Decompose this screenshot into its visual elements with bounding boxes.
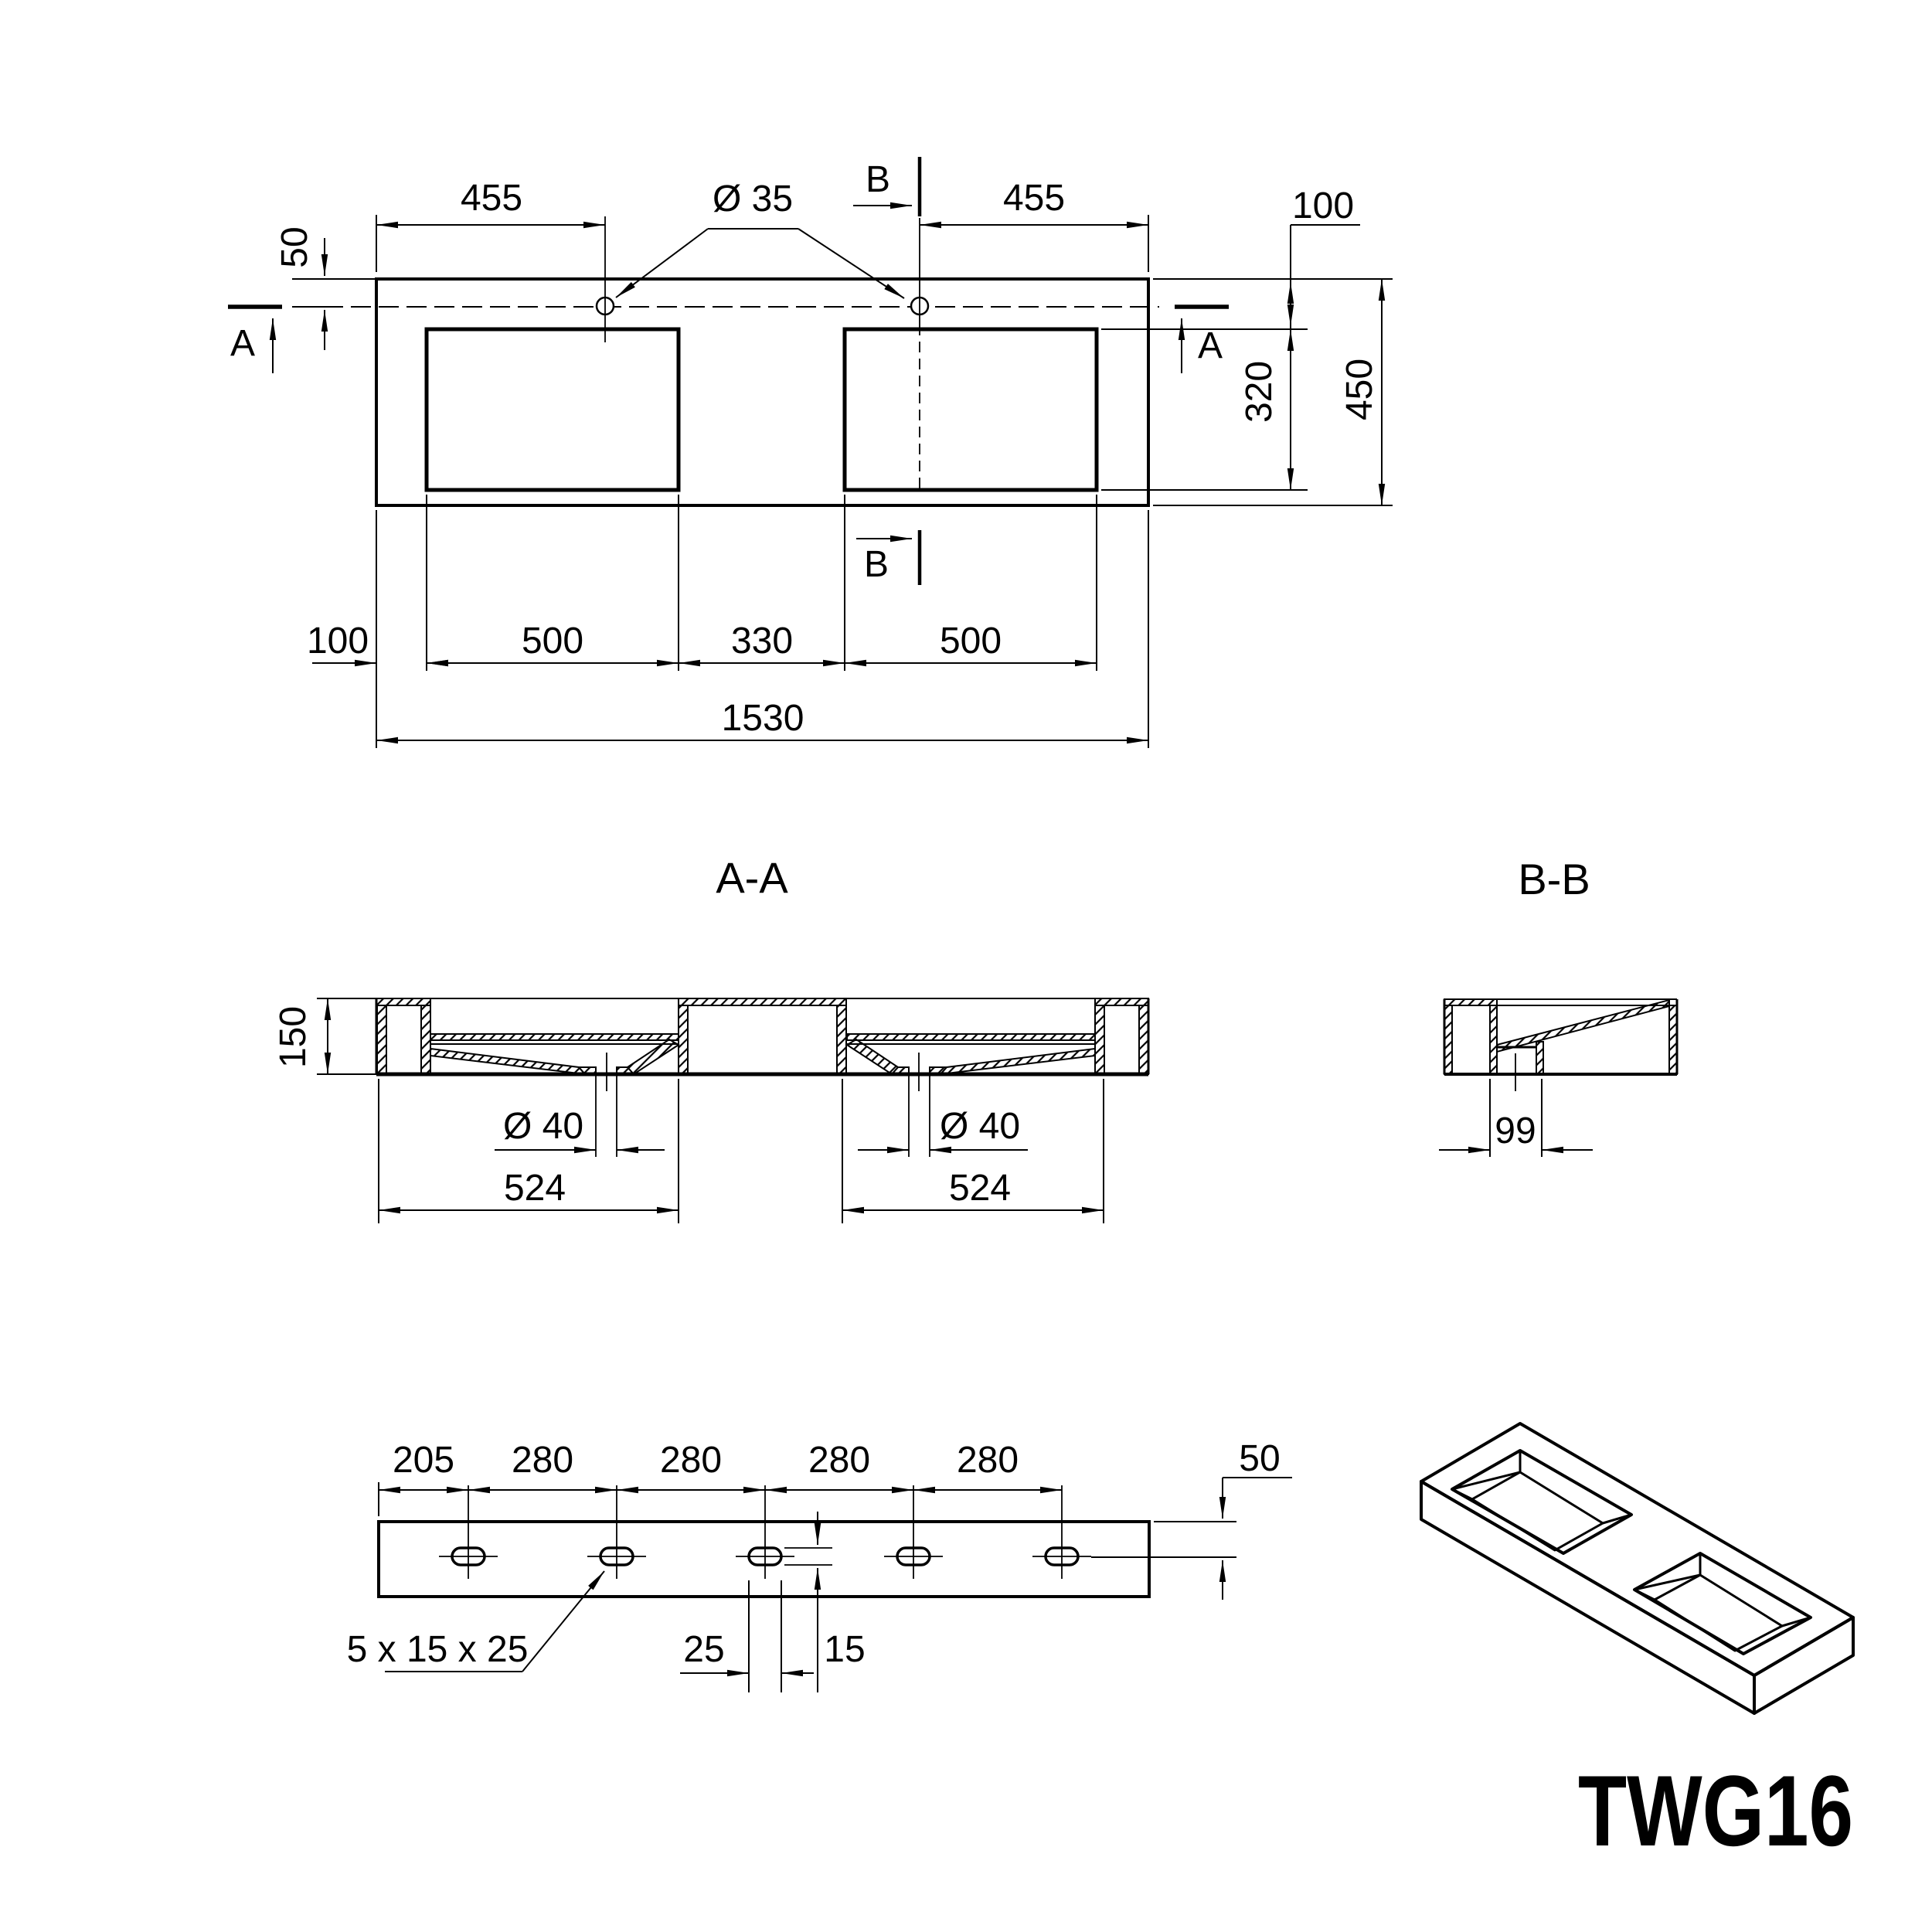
center-divider-right-skin [837,1005,846,1074]
dim-label: 320 [1239,361,1280,423]
section-cut-a-left: A [228,307,282,373]
dim-label: 100 [1292,185,1354,226]
dim-dia40-left: Ø 40 [495,1106,665,1150]
dim-label: 455 [1003,178,1065,219]
plan-outline [376,279,1148,505]
iso-basin-right [1634,1553,1811,1654]
mounting-slots [439,1485,1091,1579]
dim-chain-slots: 205 280 280 280 280 [379,1440,1062,1516]
dim-label: Ø 40 [940,1106,1020,1147]
section-a-label: A [230,323,255,364]
dim-label: 500 [940,621,1002,662]
basin1-rim-band [430,1034,679,1040]
dim-150: 150 [273,998,379,1074]
dim-label: 450 [1339,359,1380,420]
basin1-slope-gentle [430,1049,585,1074]
dim-50-left: 50 [274,226,376,350]
top-band-center [679,998,846,1005]
basin-cutout-left [427,329,679,490]
basin-floor [1472,1472,1603,1550]
dim-label: 25 [683,1629,724,1670]
section-cut-b-bottom: B [856,530,920,585]
basin-slope-edge [1452,1472,1520,1489]
basin2-slope-gentle [940,1049,1095,1074]
dim-label: 280 [808,1440,870,1481]
iso-basin-left [1452,1451,1631,1553]
basin-floor [1655,1575,1782,1651]
top-band-front [1444,999,1497,1005]
basin-slope-edge [1634,1575,1700,1590]
top-band-right [1095,998,1148,1005]
basin2-rim-band [847,1034,1095,1040]
slot-spec-note: 5 x 15 x 25 [347,1571,604,1672]
basin-slope-band [1497,1000,1669,1052]
leader-line [522,1571,604,1672]
dim-label: 524 [949,1168,1011,1209]
section-b-label: B [866,159,890,200]
dim-label: 455 [461,178,522,219]
drain-recess-wall [1536,1042,1543,1074]
back-wall-skin [1669,1005,1677,1074]
slot-spec-label: 5 x 15 x 25 [347,1629,529,1670]
leader-line-left [616,229,708,298]
dim-label: 205 [393,1440,454,1481]
basin-slope-edge2 [1634,1590,1655,1600]
slab-front-face [1421,1481,1754,1713]
dim-455-left: 455 [376,178,605,272]
dim-50-right: 50 [1091,1438,1292,1600]
dim-label: 500 [522,621,583,662]
outer-wall-right [1139,1005,1148,1074]
dim-chain-bottom: 100 500 330 500 1530 [307,495,1148,748]
dim-label: 99 [1495,1111,1536,1151]
slab-top-face [1421,1423,1853,1675]
leader-line-right [798,229,904,298]
drawing-sheet: B B A A 455 455 [0,0,1932,1932]
dim-100-right: 100 [1101,185,1393,329]
dim-label: 50 [1239,1438,1280,1479]
dim-524-left: 524 [379,1079,679,1223]
dim-label: 150 [273,1006,314,1068]
section-aa: A-A [273,853,1148,1223]
center-divider-left-skin [679,1005,688,1074]
section-cut-a-right: A [1175,307,1229,373]
dim-label: Ø 35 [713,179,793,219]
section-b-label: B [864,544,889,585]
basin-cutout-right [845,329,1097,490]
iso-view: TWG16 [1421,1423,1853,1867]
dim-label: 524 [504,1168,566,1209]
section-bb-title: B-B [1518,855,1590,903]
dim-524-right: 524 [842,1079,1104,1223]
basin-slope-edge2 [1452,1489,1472,1499]
dim-label: 1530 [722,698,804,739]
top-band-left [376,998,430,1005]
inner-wall-left [421,1005,430,1074]
dim-label: 280 [660,1440,722,1481]
dim-label: 280 [512,1440,573,1481]
section-aa-title: A-A [716,853,788,902]
front-apron-skin [1444,1005,1452,1074]
dim-label: 100 [307,621,369,662]
technical-drawing-canvas: B B A A 455 455 [0,0,1932,1932]
dim-slot-detail: 25 15 [680,1512,866,1692]
basin-front-wall [1490,1005,1497,1074]
dim-label: 15 [824,1629,865,1670]
section-bb: B-B 99 [1439,855,1677,1157]
section-cut-b-top: B [853,157,920,216]
dim-dia40-right: Ø 40 [858,1106,1028,1150]
dim-label: 330 [731,621,793,662]
top-view: B B A A 455 455 [228,157,1393,748]
section-a-label: A [1198,325,1223,366]
dim-455-right: 455 [920,178,1148,272]
bottom-view: 205 280 280 280 280 50 25 [347,1438,1292,1692]
basin-rim [1452,1451,1631,1553]
dim-label: 280 [957,1440,1019,1481]
dim-label: 50 [274,226,315,267]
dim-label: Ø 40 [503,1106,583,1147]
inner-wall-right [1095,1005,1104,1074]
model-code-label: TWG16 [1578,1754,1853,1867]
outer-wall-left [377,1005,386,1074]
